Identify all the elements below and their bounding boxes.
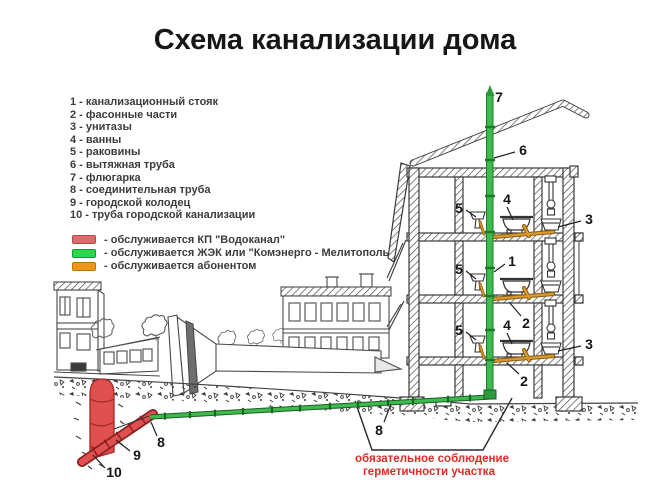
toilet xyxy=(541,176,561,230)
label-4-top: 4 xyxy=(503,191,511,207)
tightness-note-line1: обязательное соблюдение xyxy=(355,453,509,465)
label-3-top: 3 xyxy=(585,211,593,227)
up-arrow-icon xyxy=(486,85,495,96)
sewerage-diagram: 7 6 5 4 3 1 5 2 5 4 3 2 8 8 9 10 обязате… xyxy=(0,0,670,502)
label-10: 10 xyxy=(106,464,122,480)
right-wall xyxy=(563,168,574,408)
background-building-right xyxy=(281,274,391,358)
label-7: 7 xyxy=(495,89,503,105)
label-5-low: 5 xyxy=(455,322,463,338)
stack-base-elbow xyxy=(484,390,496,399)
label-5-mid: 5 xyxy=(455,261,463,277)
tightness-note: обязательное соблюдение герметичности уч… xyxy=(355,453,509,478)
main-building xyxy=(375,103,586,411)
background-annex xyxy=(96,337,160,374)
label-2-mid: 2 xyxy=(522,315,530,331)
tightness-note-line2: герметичности участка xyxy=(363,466,496,478)
roof xyxy=(413,103,586,163)
gable-edge xyxy=(388,163,410,262)
label-9: 9 xyxy=(133,447,141,463)
label-2-low: 2 xyxy=(520,373,528,389)
label-3-low: 3 xyxy=(585,336,593,352)
label-4-low: 4 xyxy=(503,317,511,333)
toilet xyxy=(541,300,561,354)
left-wall xyxy=(409,168,419,408)
label-5-top: 5 xyxy=(455,200,463,216)
toilet xyxy=(541,238,561,292)
entrance-ramp xyxy=(375,357,401,372)
background-scene xyxy=(54,274,391,396)
label-8-building: 8 xyxy=(375,422,383,438)
label-6: 6 xyxy=(519,142,527,158)
label-1: 1 xyxy=(508,253,516,269)
label-8-well: 8 xyxy=(157,434,165,450)
background-building-left xyxy=(54,282,104,371)
